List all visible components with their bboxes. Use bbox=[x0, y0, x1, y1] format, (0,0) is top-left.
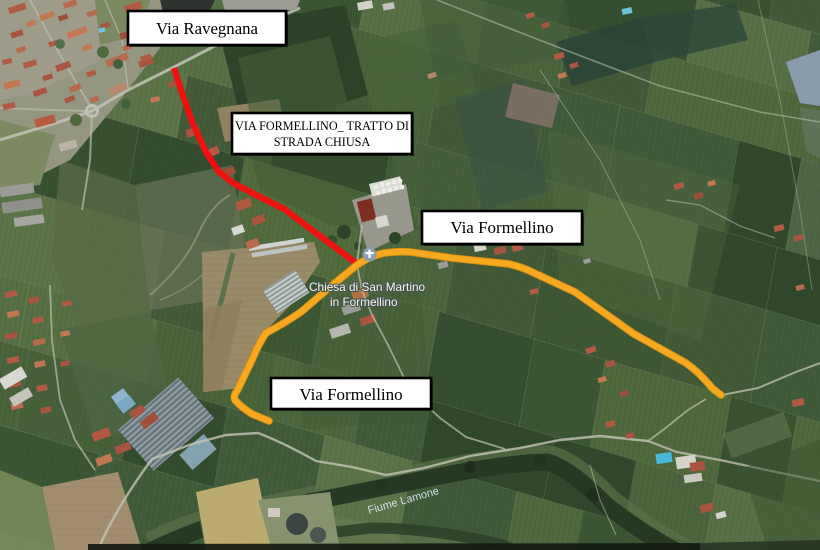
svg-text:STRADA CHIUSA: STRADA CHIUSA bbox=[274, 135, 371, 149]
svg-text:VIA FORMELLINO_ TRATTO DI: VIA FORMELLINO_ TRATTO DI bbox=[235, 119, 409, 133]
svg-text:Via Formellino: Via Formellino bbox=[450, 218, 553, 237]
svg-text:Chiesa di San Martino: Chiesa di San Martino bbox=[309, 280, 426, 294]
svg-text:Via Formellino: Via Formellino bbox=[299, 385, 402, 404]
svg-text:in Formellino: in Formellino bbox=[330, 295, 398, 309]
svg-text:Via Ravegnana: Via Ravegnana bbox=[156, 19, 259, 38]
